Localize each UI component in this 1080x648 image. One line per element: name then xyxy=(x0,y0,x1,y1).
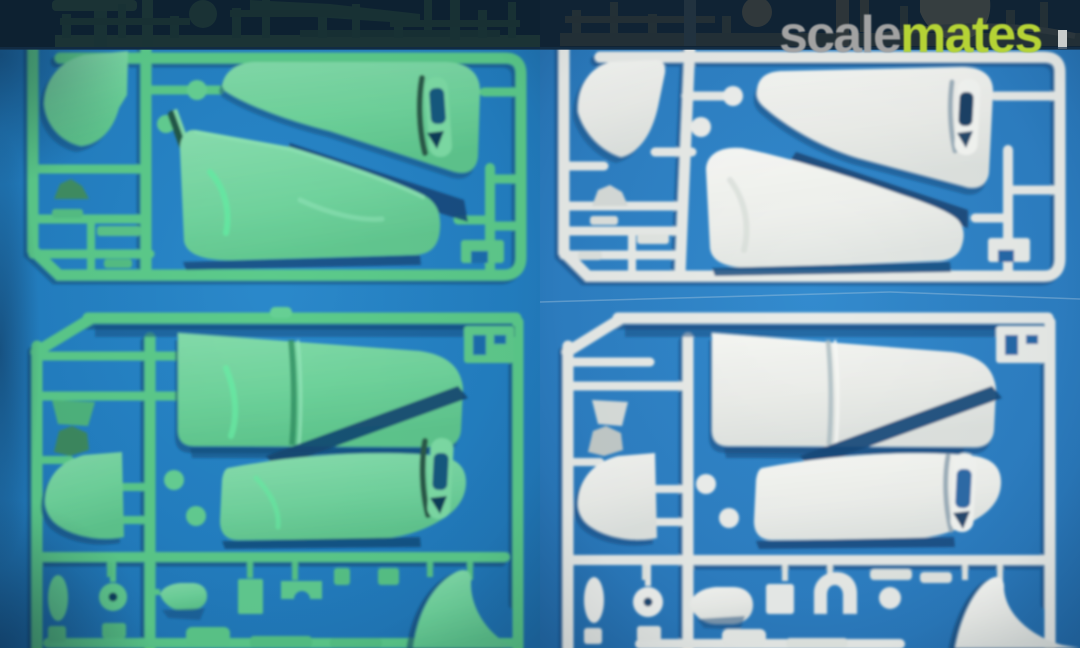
svg-text:scalemates: scalemates xyxy=(779,6,1041,64)
